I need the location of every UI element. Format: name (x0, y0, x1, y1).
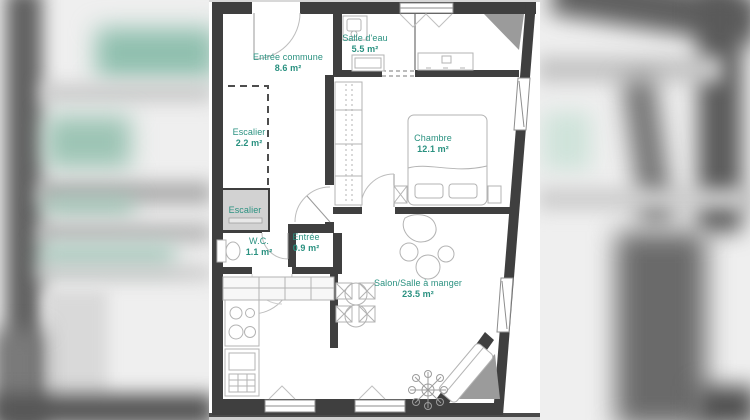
room-label-escalier-upper: Escalier 2.2 m² (233, 127, 266, 148)
room-label-chambre: Chambre 12.1 m² (414, 133, 452, 154)
room-label-salle-deau: Salle d'eau 5.5 m² (342, 33, 387, 54)
room-label-entree-commune: Entrée commune 8.6 m² (253, 52, 323, 73)
bedroom-door-arc (361, 174, 394, 207)
room-label-wc: W.C. 1.1 m² (246, 236, 273, 257)
dining-set (336, 283, 375, 327)
plan-top-edge (209, 0, 540, 2)
screenshot-root: { "floor_plan": { "rooms": [ {"name": "E… (0, 0, 750, 420)
room-label-escalier-box: Escalier (229, 205, 262, 216)
nightstand (488, 186, 501, 203)
top-right-corner-fill (484, 14, 524, 50)
room-label-salon: Salon/Salle à manger 23.5 m² (374, 278, 462, 299)
shower (352, 55, 384, 71)
stove (225, 300, 259, 346)
bed (408, 115, 487, 205)
side-table (416, 255, 440, 279)
kitchen (223, 277, 334, 396)
armchair (403, 215, 436, 242)
sink-unit (225, 349, 259, 396)
room-label-entree: Entrée 0.9 m² (292, 232, 319, 253)
floor-plan-image: Entrée commune 8.6 m² Salle d'eau 5.5 m²… (209, 0, 540, 420)
toilet (217, 240, 240, 262)
